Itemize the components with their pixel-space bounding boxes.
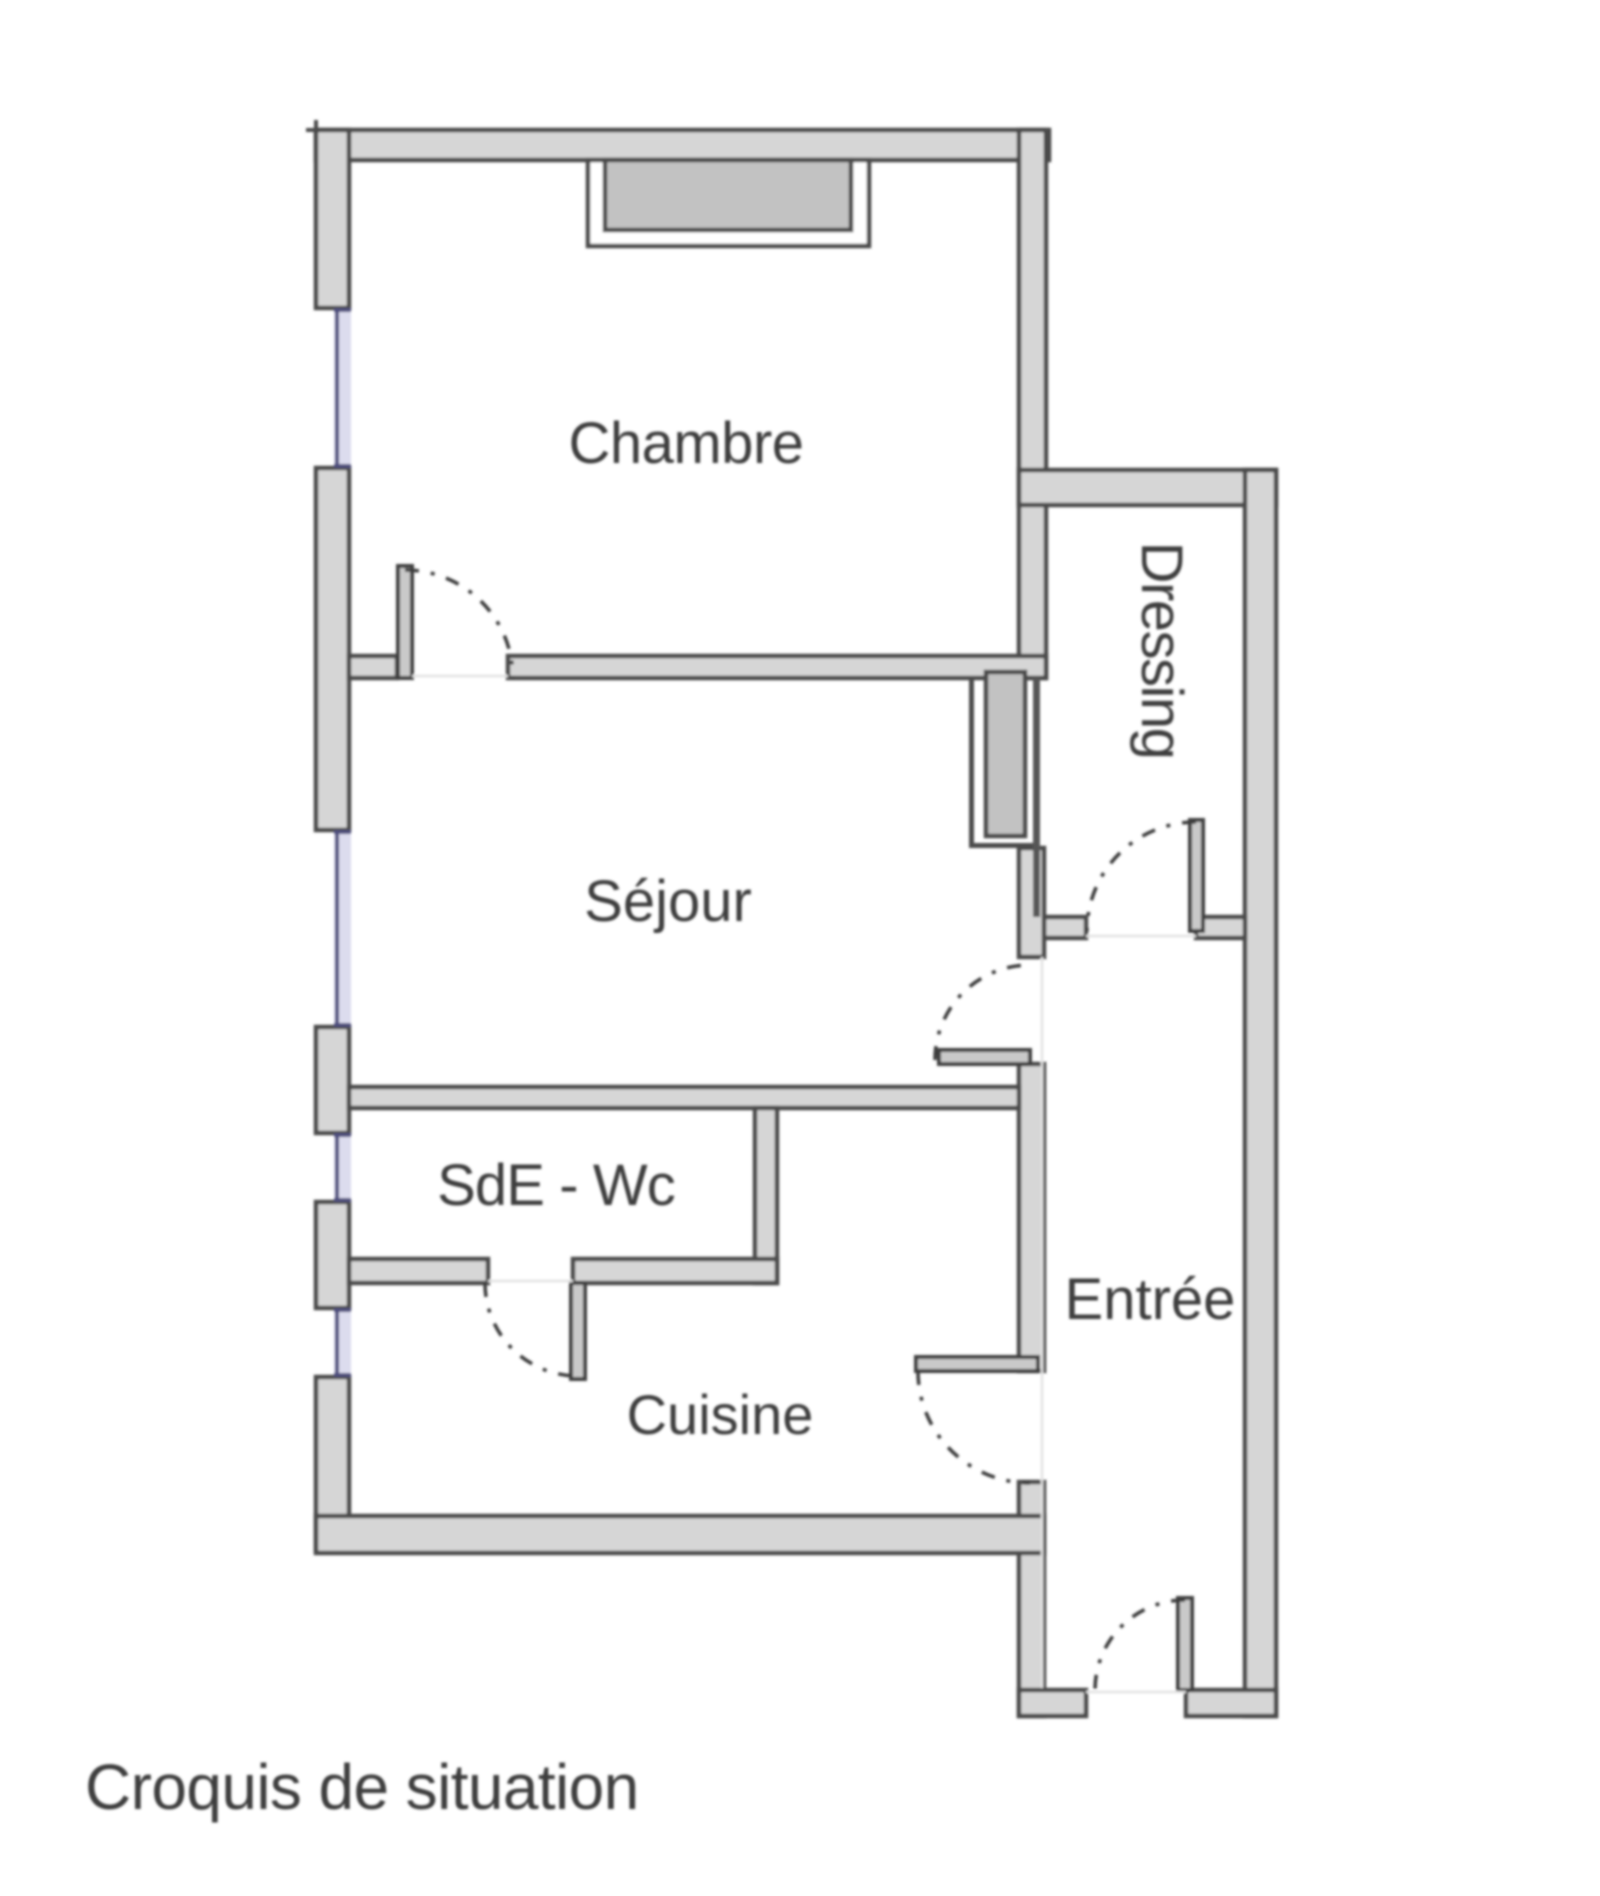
svg-text:Dressing: Dressing (1129, 542, 1194, 759)
svg-text:SdE - Wc: SdE - Wc (437, 1153, 675, 1218)
svg-text:Cuisine: Cuisine (627, 1383, 814, 1446)
svg-text:Chambre: Chambre (568, 411, 803, 476)
svg-text:Entrée: Entrée (1065, 1267, 1236, 1332)
svg-text:Croquis de situation: Croquis de situation (85, 1751, 639, 1823)
svg-text:Séjour: Séjour (584, 869, 752, 934)
